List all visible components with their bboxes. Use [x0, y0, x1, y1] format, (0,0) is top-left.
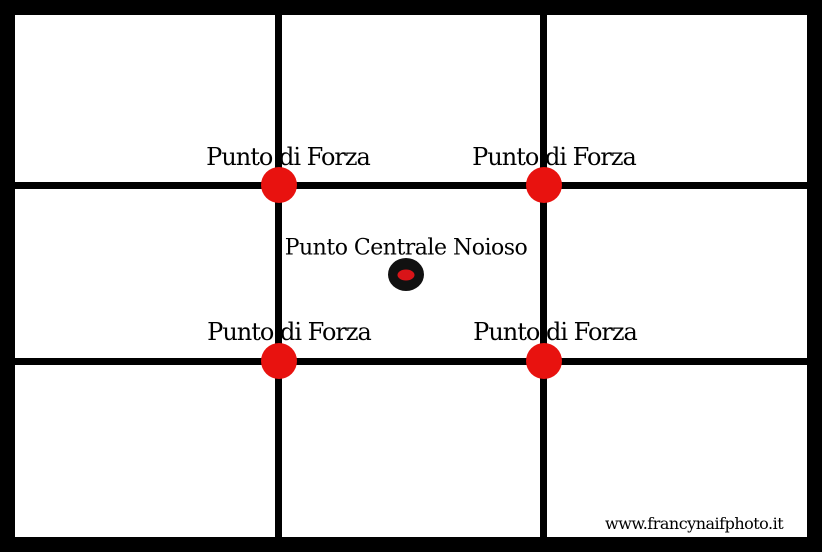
center-point-label: Punto Centrale Noioso [285, 236, 528, 261]
center-point-dot [388, 258, 424, 291]
strong-point-label-bottom-right: Punto di Forza [473, 318, 637, 346]
strong-point-label-bottom-left: Punto di Forza [207, 318, 371, 346]
rule-of-thirds-frame: Punto di Forza Punto di Forza Punto di F… [0, 0, 822, 552]
grid-line-vertical-right [540, 15, 547, 537]
strong-point-dot-bottom-left [261, 343, 297, 379]
strong-point-dot-top-right [526, 167, 562, 203]
center-point-dot-core [398, 269, 415, 280]
strong-point-label-top-right: Punto di Forza [472, 143, 636, 171]
grid-line-vertical-left [275, 15, 282, 537]
grid-line-horizontal-bottom [15, 358, 807, 365]
grid-area: Punto di Forza Punto di Forza Punto di F… [15, 15, 807, 537]
strong-point-dot-top-left [261, 167, 297, 203]
strong-point-label-top-left: Punto di Forza [206, 143, 370, 171]
grid-line-horizontal-top [15, 182, 807, 189]
strong-point-dot-bottom-right [526, 343, 562, 379]
watermark: www.francynaifphoto.it [598, 510, 804, 537]
